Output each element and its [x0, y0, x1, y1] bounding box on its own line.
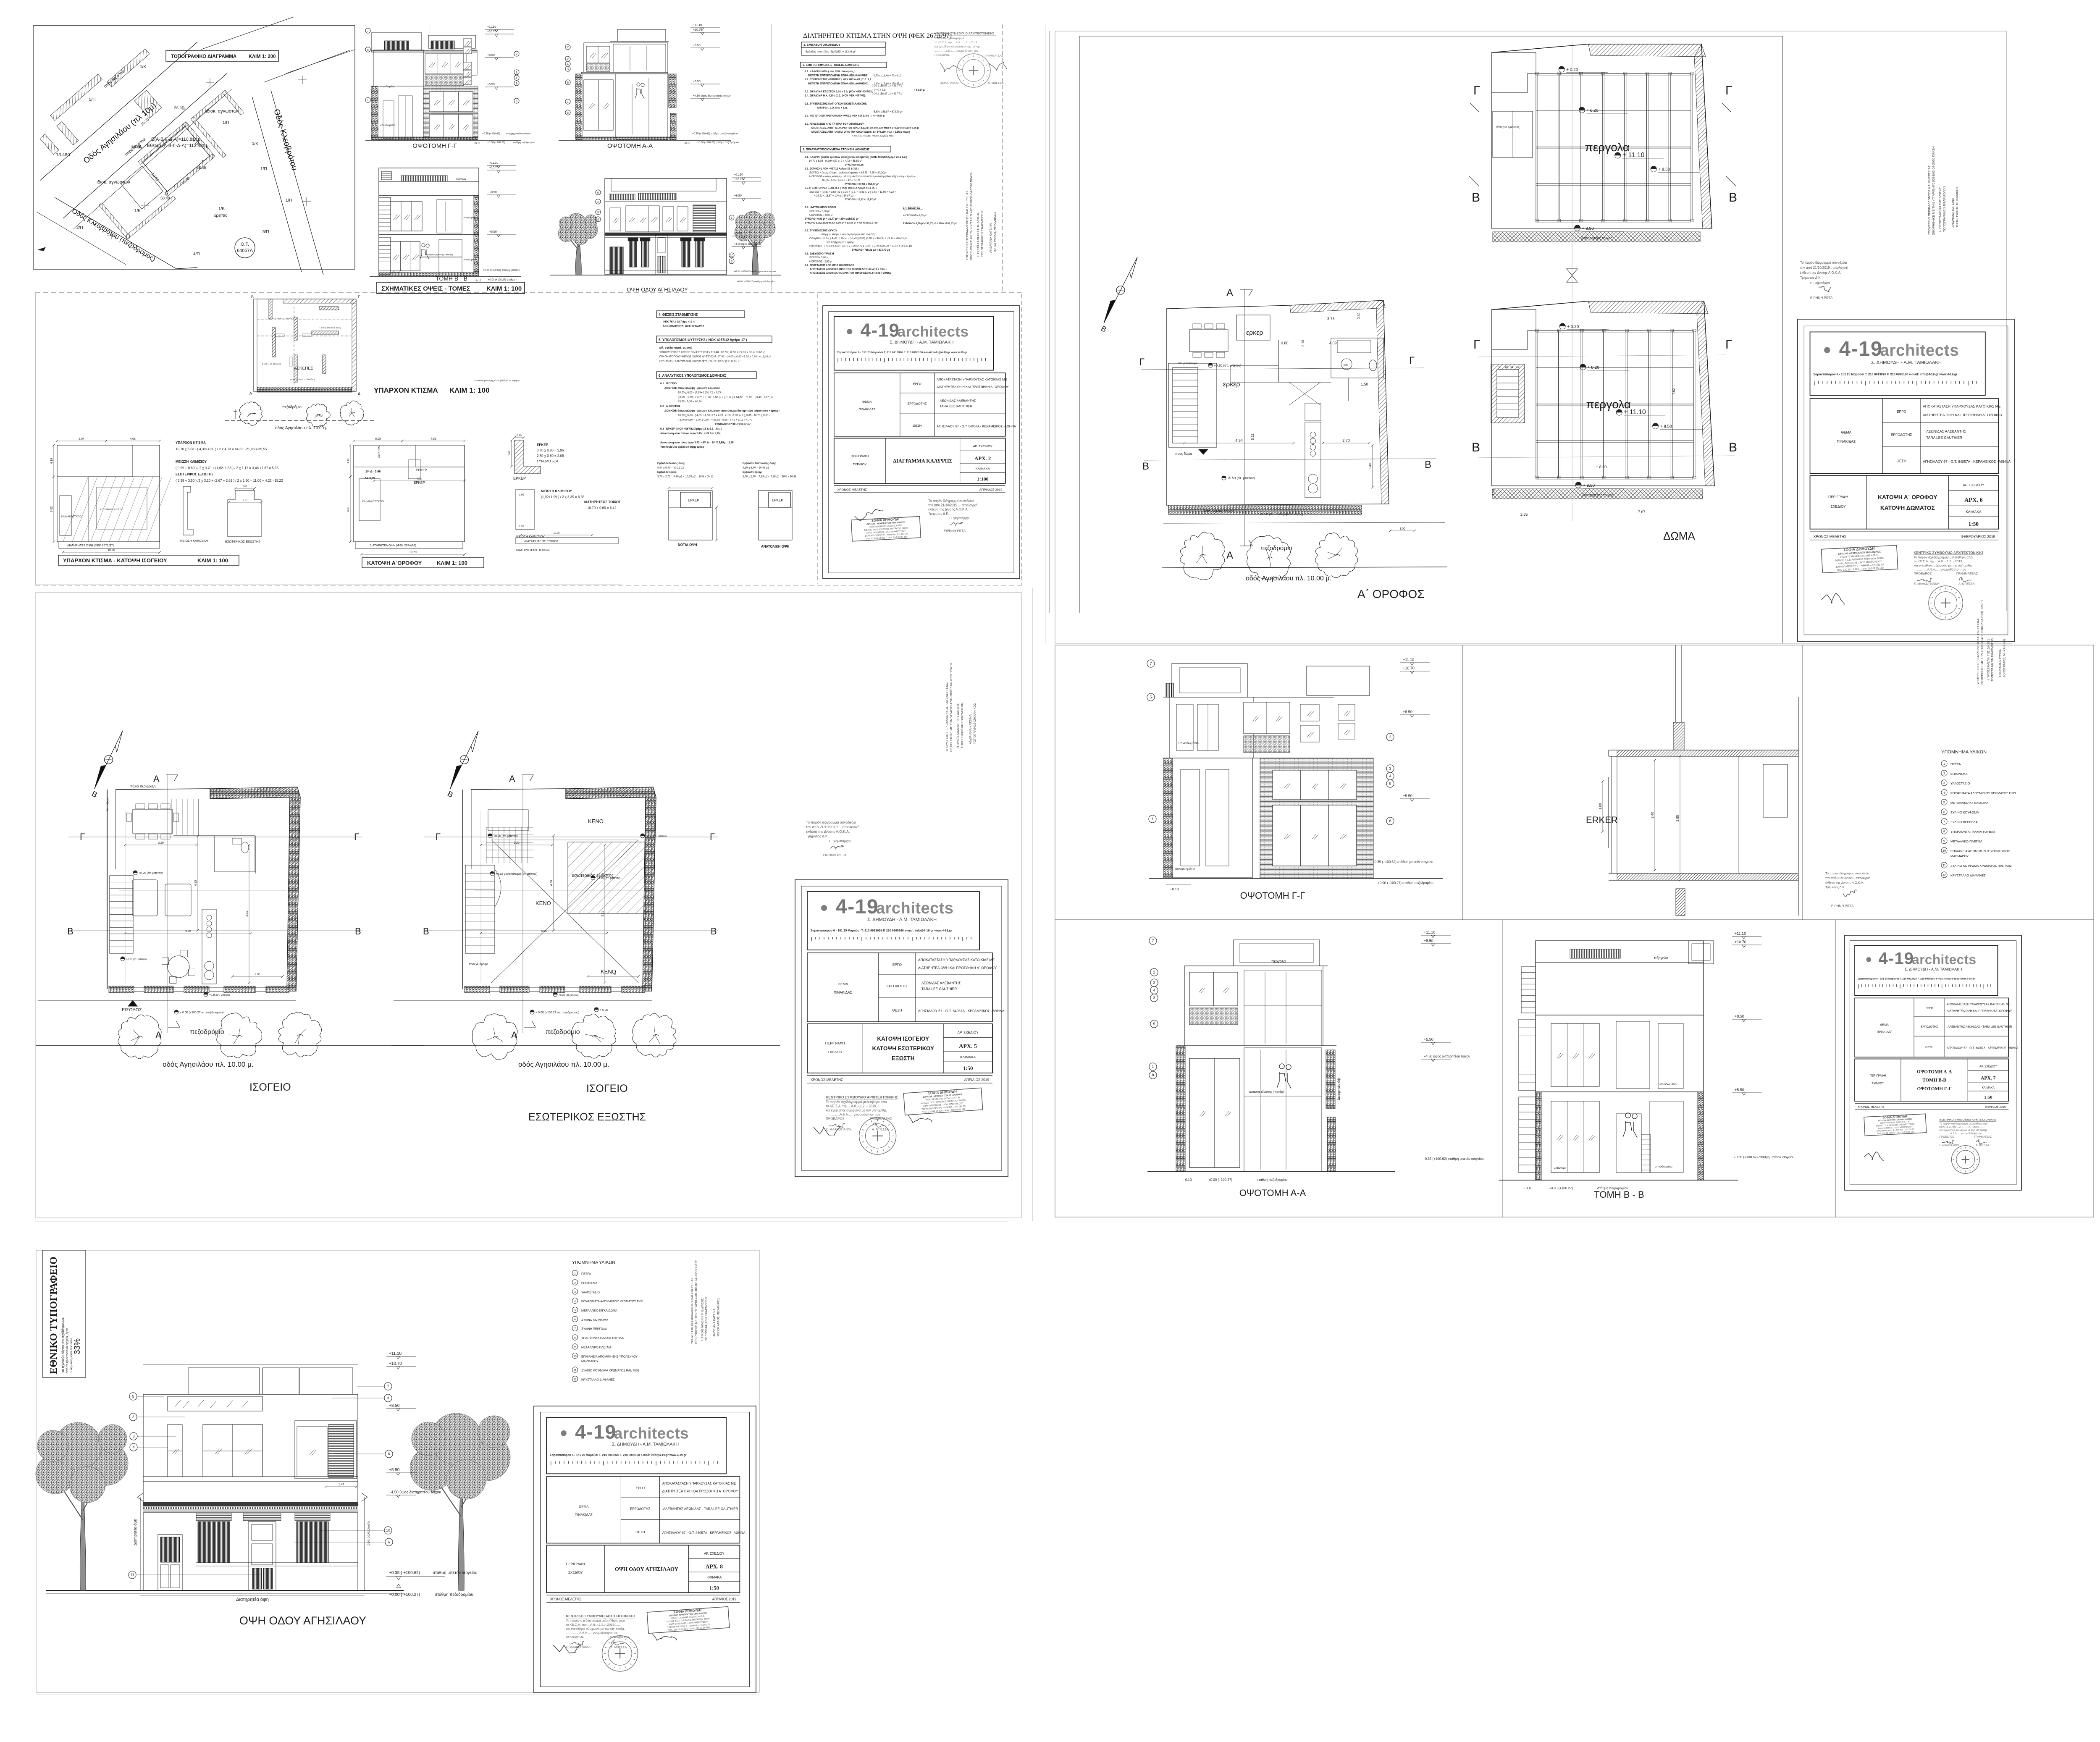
svg-text:ΠΙΝΑΚΙΔΑΣ: ΠΙΝΑΚΙΔΑΣ: [1837, 439, 1856, 443]
svg-text:+ 0.33 (+100.60 στ. δαπέδου): + 0.33 (+100.60 στ. δαπέδου): [269, 317, 294, 320]
svg-text:ΔΙΑΤΗΡΗΤΕΟΣ ΤΟΙΧΟΣ: ΔΙΑΤΗΡΗΤΕΟΣ ΤΟΙΧΟΣ: [524, 539, 559, 543]
svg-text:σμίκρυνση κατά ποσοστό: σμίκρυνση κατά ποσοστό: [69, 1338, 73, 1373]
svg-text:διατηρητεος τοιχος: διατηρητεος τοιχος: [1203, 509, 1234, 513]
svg-text:7.62: 7.62: [1672, 388, 1676, 395]
svg-text:ΠΕΡΙΓΡΑΦΗ: ΠΕΡΙΓΡΑΦΗ: [566, 1562, 585, 1566]
svg-text:ΥΑΛΟΣΤΑΣΙΟ: ΥΑΛΟΣΤΑΣΙΟ: [1950, 782, 1970, 785]
svg-text:33%: 33%: [73, 1338, 82, 1354]
svg-text:ΞΥΛΙΝΟ ΚΟΥΦΩΜΑ ΧΡΩΜΑΤΟΣ RAL 7: ΞΥΛΙΝΟ ΚΟΥΦΩΜΑ ΧΡΩΜΑΤΟΣ RAL 7002: [1950, 864, 2012, 868]
svg-text:ΓΡΑΜΜΑΤΕΑΣ: ΓΡΑΜΜΑΤΕΑΣ: [1956, 572, 1978, 575]
svg-text:έκθεση της Δ/νσης Α.Ο.Κ.Α.: έκθεση της Δ/νσης Α.Ο.Κ.Α.: [1800, 271, 1841, 275]
svg-text:Ε. ΜΛΑΚΟΓΙΑΝΝΗ: Ε. ΜΛΑΚΟΓΙΑΝΝΗ: [1914, 582, 1939, 585]
svg-text:= 0,40 x Σ.Δ.: = 0,40 x Σ.Δ.: [872, 89, 887, 92]
svg-text:υπνοδωμάτιο: υπνοδωμάτιο: [1175, 867, 1195, 871]
svg-text:εσωτερικός εξώστης ( πατάρι): εσωτερικός εξώστης ( πατάρι): [425, 253, 453, 256]
svg-text:νεο περίγραμμα + έρκερ: νεο περίγραμμα + έρκερ: [827, 241, 854, 244]
svg-text:85,55 - 6,55 - 6,42 + 5,12 =: 85,55 - 6,55 - 6,42 + 5,12 = 77,70: [822, 179, 860, 182]
svg-text:ιδιοκ. αγνώστων: ιδιοκ. αγνώστων: [206, 109, 239, 114]
svg-text:ΕΞΩΣΤΗ: ΕΞΩΣΤΗ: [892, 1055, 915, 1062]
svg-text:ΑΠΟΣΤΑΣΕΙΣ ΑΠΟ ΠΛΑΓΙΑ ΟΡΙΑ ΤΟΥ: ΑΠΟΣΤΑΣΕΙΣ ΑΠΟ ΠΛΑΓΙΑ ΟΡΙΑ ΤΟΥ ΟΙΚΟΠΕΔΟΥ…: [810, 272, 891, 275]
svg-text:ΠΙΝΑΚΙΔΑΣ: ΠΙΝΑΚΙΔΑΣ: [1877, 1031, 1892, 1034]
svg-text:+0.00 ( +100.27): +0.00 ( +100.27): [389, 1592, 420, 1597]
svg-text:ΔΙΑΤΗΡΗΤΕΟ ΚΤΙΣΜΑ ΣΤΗΝ ΟΨΗ (ΦΕ: ΔΙΑΤΗΡΗΤΕΟ ΚΤΙΣΜΑ ΣΤΗΝ ΟΨΗ (ΦΕΚ 267Δ/97): [803, 32, 952, 39]
svg-text:+10.70: +10.70: [489, 166, 499, 169]
svg-text:ΙΣΟΓΕΙΟ= 5,00 μ: ΙΣΟΓΕΙΟ= 5,00 μ: [809, 257, 828, 259]
svg-text:2: 2: [516, 53, 517, 56]
svg-text:+0.00 (+100.27): +0.00 (+100.27): [487, 142, 505, 144]
svg-text:ΞΥΛΙΝΗ ΠΕΡΓΟΛΑ: ΞΥΛΙΝΗ ΠΕΡΓΟΛΑ: [581, 1327, 607, 1331]
svg-text:ΜΑΡΜΑΡΟΥ: ΜΑΡΜΑΡΟΥ: [581, 1360, 598, 1363]
svg-text:10.70: 10.70: [108, 549, 115, 552]
svg-text:Α ΟΡΟΦΟΣ = όπως κάλυψη -: Α ΟΡΟΦΟΣ = όπως κάλυψη - μείωση κλιμ/σιο…: [809, 175, 916, 178]
svg-text:+ 0.20: + 0.20: [1567, 325, 1579, 329]
svg-text:ΔΙΑΤΗΡΗΤΕΑ ΟΨΗ ΚΑΙ ΠΡΟΣΘΗΚΗ Α΄: ΔΙΑΤΗΡΗΤΕΑ ΟΨΗ ΚΑΙ ΠΡΟΣΘΗΚΗ Α΄ ΟΡΟΦΟΥ: [918, 966, 997, 970]
svg-text:Εμβαδόν οικοπέδου: Ε(ΑΓΔΕΑ)= 1: Εμβαδόν οικοπέδου: Ε(ΑΓΔΕΑ)= 113,48 μ²: [806, 50, 856, 53]
svg-text:Α. ΜΠΕΣΣΑ: Α. ΜΠΕΣΣΑ: [611, 1645, 627, 1649]
svg-text:ΚΑΤΟΨΗ Α΄ ΟΡΟΦΟΥ: ΚΑΤΟΨΗ Α΄ ΟΡΟΦΟΥ: [1878, 494, 1937, 501]
svg-text:2: 2: [132, 1415, 134, 1419]
svg-text:4,39 χ 8,40 = 36,88 μ2: 4,39 χ 8,40 = 36,88 μ2: [743, 467, 769, 470]
svg-text:ΕΡΓΟΔΟΤΗΣ: ΕΡΓΟΔΟΤΗΣ: [630, 1507, 650, 1511]
svg-text:5: 5: [367, 49, 369, 52]
svg-text:+5.50: +5.50: [389, 1468, 400, 1472]
svg-text:1.50: 1.50: [1361, 382, 1368, 386]
svg-text:3.6. ΕΛΕΥΘΕΡΟ ΥΨΟΣ Η: 3.6. ΕΛΕΥΘΕΡΟ ΥΨΟΣ Η: [805, 253, 834, 255]
svg-text:υπάρχων κτισμα + νεο περί: υπάρχων κτισμα + νεο περίγραμμα απο Η=4,…: [821, 233, 876, 236]
svg-text:( 3,70 χ 0,80 + 2,70 χ 0,80 ): ( 3,70 χ 0,80 + 2,70 χ 0,80 ) = 85,55 - …: [678, 418, 752, 421]
svg-text:3.2. ΔΟΜΗΣΗ ( ΝΟΚ 4067/12: 3.2. ΔΟΜΗΣΗ ( ΝΟΚ 4067/12 Άρθρο 23 & 3.β…: [805, 168, 858, 171]
svg-text:+ 0.20: + 0.20: [1566, 68, 1578, 72]
svg-text:υπνοδωμάτιο: υπνοδωμάτιο: [1655, 1165, 1672, 1168]
svg-text:το ΚΕ.Σ.Α. την ....Α.Χ..-.1.: το ΚΕ.Σ.Α. την ....Α.Χ..-.1.2..-.201.9..…: [934, 41, 982, 44]
svg-text:ΙΣΟΓΕΙΟ: ΙΣΟΓΕΙΟ: [249, 1081, 291, 1093]
svg-text:TARA LEE GAUTHIER: TARA LEE GAUTHIER: [921, 987, 957, 991]
svg-text:ΔΙΑΓΡΑΜΜΑ ΚΑΛΥΨΗΣ: ΔΙΑΓΡΑΜΜΑ ΚΑΛΥΨΗΣ: [893, 458, 952, 464]
svg-text:ή δ= 2,50 +0,05Η max = 2,925: ή δ= 2,50 +0,05Η max = 2,925 μ max: [852, 135, 893, 138]
svg-text:2/Π: 2/Π: [76, 226, 83, 230]
svg-text:Α. ΜΠΕΣΣΑ: Α. ΜΠΕΣΣΑ: [988, 82, 1004, 85]
svg-text:( 0,99 + 0.89 ) x 3.70 + (1,62: ( 0,99 + 0.89 ) x 3.70 + (1,62+1,58 ) / …: [678, 396, 773, 399]
svg-text:ΑΛΕΒΑΝΤΗΣ ΛΕΩΝΙΔΑΣ - TARA LE: ΑΛΕΒΑΝΤΗΣ ΛΕΩΝΙΔΑΣ - TARA LEE GAUTHIER: [1948, 1026, 2012, 1028]
svg-text:7: 7: [367, 30, 369, 33]
svg-text:ΕΡΓΟ: ΕΡΓΟ: [636, 1486, 645, 1490]
svg-text:Απόσταση από πλάγια όρια 2,45: Απόσταση από πλάγια όρια 2,45μ >1/4 δ = …: [660, 432, 721, 435]
svg-text:Απόσταση από πίσω όρια 3,43: Απόσταση από πίσω όρια 3,43 > 3/4 Δ = 3/…: [660, 441, 734, 444]
svg-text:ΑΓΗΣΙΛΑΟΥ 67 - Ο.Τ. 64057Α -: ΑΓΗΣΙΛΑΟΥ 67 - Ο.Τ. 64057Α - ΚΕΡΑΜΕΙΚΟΣ …: [937, 425, 1016, 428]
svg-text:το ΚΕ.Σ.Α. την ...Α.8..-.1.2..: το ΚΕ.Σ.Α. την ...Α.8..-.1.2..-.2019....…: [566, 1623, 620, 1627]
svg-text:7: 7: [1943, 821, 1945, 824]
svg-text:υπνοδωμάτιο: υπνοδωμάτιο: [380, 124, 395, 127]
svg-text:+4.50 ύψος διατηρητέου τοίχου: +4.50 ύψος διατηρητέου τοίχου: [389, 1490, 441, 1494]
svg-text:+0.20 (στ. μπετον): +0.20 (στ. μπετον): [1214, 364, 1242, 367]
svg-text:ΙΣΟΓΕΙΟ: ΙΣΟΓΕΙΟ: [586, 1083, 628, 1094]
svg-text:υπνοδωμάτιο: υπνοδωμάτιο: [1179, 741, 1199, 745]
svg-text:Γ: Γ: [354, 832, 359, 842]
svg-text:Β: Β: [251, 295, 254, 299]
svg-text:Εθεωρ.(Α-Β-Γ-Δ-Α)=113.48τ.μ.: Εθεωρ.(Α-Β-Γ-Δ-Α)=113.48τ.μ.: [147, 143, 210, 148]
svg-text:- 0.10: - 0.10: [1183, 1178, 1192, 1182]
svg-text:ΦΕΚ 76Α / 98 Άθρο 4 & 4: ΦΕΚ 76Α / 98 Άθρο 4 & 4: [663, 320, 695, 323]
svg-text:+0.35 (+100.62) στάθμη μπετον: +0.35 (+100.62) στάθμη μπετον ισογείου: [1734, 1155, 1794, 1159]
svg-text:+0.35 (+100.62) στάθμη μπετόν: +0.35 (+100.62) στάθμη μπετόν ι: [483, 269, 520, 272]
svg-text:1. ΕΜΒΑΔΟΝ ΟΙΚΟΠΕΔΟΥ: 1. ΕΜΒΑΔΟΝ ΟΙΚΟΠΕΔΟΥ: [803, 44, 840, 47]
svg-text:2.7. ΑΠΟΣΤΑΣΕΙΣ ΑΠΟ ΤΑ ΟΡΙΑ Τ: 2.7. ΑΠΟΣΤΑΣΕΙΣ ΑΠΟ ΤΑ ΟΡΙΑ ΤΟΥ ΟΙΚΟΠΕΔΟ…: [805, 123, 864, 126]
svg-text:ΧΡΟΝΟΣ ΜΕΛΕΤΗΣ: ΧΡΟΝΟΣ ΜΕΛΕΤΗΣ: [1814, 534, 1846, 538]
svg-text:ΑΠΡΙΛΙΟΣ 2019: ΑΠΡΙΛΙΟΣ 2019: [1985, 1106, 2006, 1109]
svg-text:ΑΡ. ΣΧΕΔΙΟΥ: ΑΡ. ΣΧΕΔΙΟΥ: [704, 1552, 724, 1556]
svg-text:5: 5: [574, 1309, 576, 1312]
svg-text:ΓΡΑΜΜΑΤΕΑΣ: ΓΡΑΜΜΑΤΕΑΣ: [870, 1117, 892, 1121]
svg-text:ΘΕΜΑ: ΘΕΜΑ: [838, 982, 848, 986]
svg-text:2: 2: [1389, 735, 1391, 739]
svg-text:Γ: Γ: [1139, 357, 1144, 368]
svg-text:5: 5: [1150, 695, 1152, 699]
svg-text:10: 10: [1504, 366, 1508, 369]
svg-text:3: 3: [1153, 996, 1155, 1000]
svg-text:ΞΥΛΙΝΗ ΠΕΡΓΟΛΑ: ΞΥΛΙΝΗ ΠΕΡΓΟΛΑ: [1950, 820, 1978, 824]
svg-text:ΜΕΤΑΛΛΙΚΟ ΠΛΕΓΜΑ: ΜΕΤΑΛΛΙΚΟ ΠΛΕΓΜΑ: [1950, 840, 1982, 843]
svg-text:3,70 x 2,70 = 9,99 μ2 < 10,03: 3,70 x 2,70 = 9,99 μ2 < 10,03 μ2 = 20% x…: [657, 475, 714, 478]
svg-text:11: 11: [1942, 864, 1945, 867]
svg-text:προς δώμα: προς δώμα: [1175, 452, 1192, 456]
svg-text:1/Π: 1/Π: [286, 198, 292, 203]
svg-text:Υπολογισμός εμβαδού όψης έρκερ: Υπολογισμός εμβαδού όψης έρκερ: [660, 445, 704, 449]
svg-text:ΜΕΙΩΣΗ ΚΛΙΜ/ΣΙΟΥ: ΜΕΙΩΣΗ ΚΛΙΜ/ΣΙΟΥ: [541, 489, 572, 493]
svg-text:και εγκρίθηκε σύμφωνα με την υ: και εγκρίθηκε σύμφωνα με την υπ' αριθμ.: [1914, 564, 1972, 567]
svg-text:...............Α.5.Λ..... γνωμ: ...............Α.5.Λ..... γνωμοδότηση το…: [566, 1631, 618, 1634]
svg-text:Β: Β: [1472, 441, 1480, 454]
svg-text:ΜΕΓΙΣΤΗ ΕΠΙΤΡΕΠΟΜΕΝΗ ΕΠΙΦΑΝΕΙΑ: ΜΕΓΙΣΤΗ ΕΠΙΤΡΕΠΟΜΕΝΗ ΕΠΙΦΑΝΕΙΑ ΔΟΜΗΣΗΣ:: [808, 83, 869, 85]
svg-text:Εμβαδόν Ανατολικής όψης: Εμβαδόν Ανατολικής όψης: [743, 462, 777, 465]
svg-text:Το παρόν σχεδιάγραμμα μελετήθη: Το παρόν σχεδιάγραμμα μελετήθηκε από: [1914, 555, 1972, 559]
svg-text:Δ: Δ: [165, 190, 168, 196]
svg-text:ΑΠΟΣΤΑΣΕΙΣ ΑΠΟ ΠΛΑΓΙΑ ΟΡΙΑ ΤΟΥ: ΑΠΟΣΤΑΣΕΙΣ ΑΠΟ ΠΛΑΓΙΑ ΟΡΙΑ ΤΟΥ ΟΙΚΟΠΕΔΟΥ…: [811, 131, 910, 134]
svg-text:Σαρανταπόρου 6 - 151 25 Μαρούσ: Σαρανταπόρου 6 - 151 25 Μαρούσι Τ. 210 6…: [1858, 978, 1975, 981]
svg-text:ΤΟΠΟΓΡΑΦΟΣ ΜΗΧΑΝΙΚΟΣ: ΤΟΠΟΓΡΑΦΟΣ ΜΗΧΑΝΙΚΟΣ: [1955, 186, 1959, 228]
svg-text:58.45: 58.45: [197, 165, 206, 170]
svg-text:ΚΕΝΤΡΙΚΟ ΣΥΜΒΟΥΛΙΟ ΑΡΧΙΤΕΚΤΟ: ΚΕΝΤΡΙΚΟ ΣΥΜΒΟΥΛΙΟ ΑΡΧΙΤΕΚΤΟΝΙΚΗΣ: [826, 1095, 898, 1099]
svg-text:Β: Β: [181, 105, 185, 111]
svg-text:ΟΨΟΤΟΜΗ Γ-Γ: ΟΨΟΤΟΜΗ Γ-Γ: [412, 142, 457, 150]
svg-text:Σ. ΔΗΜΟΥΔΗ - Α.Μ. ΤΑΜΙΩΛΑΚΗ: Σ. ΔΗΜΟΥΔΗ - Α.Μ. ΤΑΜΙΩΛΑΚΗ: [1905, 967, 1962, 971]
svg-text:ΕΡΓΟ: ΕΡΓΟ: [892, 963, 902, 967]
svg-text:ΚΡΥΣΤΑΛΛΟ ΔΙΑΦΑΝΕΣ: ΚΡΥΣΤΑΛΛΟ ΔΙΑΦΑΝΕΣ: [1950, 874, 1986, 877]
svg-text:ΠΙΝΑΚΙΔΑΣ: ΠΙΝΑΚΙΔΑΣ: [858, 407, 876, 411]
svg-text:6.2 . Ά ΟΡΟΦΟΣ: 6.2 . Ά ΟΡΟΦΟΣ: [660, 405, 680, 408]
svg-text:2: 2: [567, 58, 569, 61]
svg-text:Σ. ΔΗΜΟΥΔΗ - Α.Μ. ΤΑΜΙΩΛΑΚΗ: Σ. ΔΗΜΟΥΔΗ - Α.Μ. ΤΑΜΙΩΛΑΚΗ: [612, 1442, 679, 1447]
svg-text:6: 6: [574, 1318, 576, 1321]
svg-text:4-19: 4-19: [861, 320, 900, 341]
svg-text:Α΄ ΟΡΟΦΟΣ: Α΄ ΟΡΟΦΟΣ: [1357, 588, 1424, 601]
svg-text:...............1.5.1..... γνωμ: ...............1.5.1..... γνωμοδότηση το…: [934, 49, 978, 52]
svg-text:10: 10: [386, 1528, 390, 1532]
svg-text:6.1 . ΙΣΟΓΕΙΟ: 6.1 . ΙΣΟΓΕΙΟ: [660, 382, 677, 385]
svg-text:Α. ΜΠΕΣΣΑ: Α. ΜΠΕΣΣΑ: [1976, 1144, 1989, 1147]
svg-text:0.52: 0.52: [1357, 312, 1361, 319]
svg-text:ΕΡΓΟΔΟΤΗΣ: ΕΡΓΟΔΟΤΗΣ: [1921, 1026, 1938, 1028]
svg-text:Β: Β: [67, 926, 73, 937]
svg-text:ΚΛΙΜΑΚΑ: ΚΛΙΜΑΚΑ: [1982, 1086, 1995, 1089]
svg-text:2.70: 2.70: [1342, 438, 1350, 443]
svg-text:4: 4: [132, 1445, 134, 1449]
svg-text:ΕΡΚΕΡ: ΕΡΚΕΡ: [688, 498, 699, 502]
svg-text:Η ΠΡΟΪΣΤΑΜΕΝΗ ΤΗΣ Δ/ΝΣΗΣ: Η ΠΡΟΪΣΤΑΜΕΝΗ ΤΗΣ Δ/ΝΣΗΣ: [1938, 187, 1942, 232]
svg-text:ΑΠΟΚΑΤΑΣΤΑΣΗ ΥΠΑΡΧΟΥΣΑΣ ΚΑΤΟΙ: ΑΠΟΚΑΤΑΣΤΑΣΗ ΥΠΑΡΧΟΥΣΑΣ ΚΑΤΟΙΚΙΑΣ ΜΕ: [937, 378, 1007, 381]
svg-text:ΤΟΠΟΓΡΑΦΙΚΩΝ ΕΦΑΡΜΟΓΩΝ: ΤΟΠΟΓΡΑΦΙΚΩΝ ΕΦΑΡΜΟΓΩΝ: [960, 703, 964, 748]
svg-text:7: 7: [1152, 939, 1154, 943]
svg-text:ΘΕΩΡΗΘΗΚΕ ΜΕ ΤΗΝ ΥΠ'ΑΡΙΘ.4701/: ΘΕΩΡΗΘΗΚΕ ΜΕ ΤΗΝ ΥΠ'ΑΡΙΘ.4701/388/02-04-…: [969, 171, 973, 260]
svg-text:ΣΧΕΔΙΟΥ: ΣΧΕΔΙΟΥ: [827, 1050, 843, 1054]
svg-text:Σ. ΔΗΜΟΥΔΗ - Α.Μ. ΤΑΜΙΩΛΑΚΗ: Σ. ΔΗΜΟΥΔΗ - Α.Μ. ΤΑΜΙΩΛΑΚΗ: [867, 917, 937, 922]
svg-text:9: 9: [516, 82, 517, 85]
svg-text:+ 0.43 (+100.73 στ. δαπέδου): + 0.43 (+100.73 στ. δαπέδου): [290, 378, 315, 380]
svg-text:+11.10: +11.10: [734, 173, 743, 176]
svg-text:4: 4: [567, 63, 569, 66]
svg-text:Η ΠΡΟΪΣΤΑΜΕΝΗ ΤΗΣ Δ/ΝΣΗΣ: Η ΠΡΟΪΣΤΑΜΕΝΗ ΤΗΣ Δ/ΝΣΗΣ: [976, 212, 980, 257]
svg-text:2.61: 2.61: [242, 485, 247, 488]
svg-text:Η Τμηματάρχης: Η Τμηματάρχης: [950, 517, 970, 520]
svg-text:ΘΕΜΑ: ΘΕΜΑ: [579, 1505, 589, 1509]
svg-text:ΚΛΙΜΑΚΟΣΤΑΣΙΟ: ΚΛΙΜΑΚΟΣΤΑΣΙΟ: [362, 500, 384, 503]
svg-text:ανοικτός εξώστης ( πατάρι): ανοικτός εξώστης ( πατάρι): [1249, 1090, 1284, 1094]
svg-text:1:50: 1:50: [709, 1585, 719, 1591]
svg-text:+8.50: +8.50: [389, 1404, 400, 1408]
svg-text:7: 7: [567, 46, 569, 49]
svg-text:ΑΠΟΣΤΑΣΕΙΣ ΑΠΟ ΠΙΣΩ ΟΡΙΟ ΤΟΥ Ο: ΑΠΟΣΤΑΣΕΙΣ ΑΠΟ ΠΙΣΩ ΟΡΙΟ ΤΟΥ ΟΙΚΟΠΕΔΟΥ: …: [810, 268, 887, 271]
svg-text:ΔΙΑΤΗΡΗΤΕΑ ΟΨΗ ΚΑΙ ΠΡΟΣΘΗΚΗ Α΄: ΔΙΑΤΗΡΗΤΕΑ ΟΨΗ ΚΑΙ ΠΡΟΣΘΗΚΗ Α΄ ΟΡΟΦΟΥ: [662, 1489, 738, 1493]
svg-text:ΠΡΟΕΔΡΟΣ: ΠΡΟΕΔΡΟΣ: [826, 1117, 845, 1121]
svg-text:5,97 χ 8,40 = 50,15 μ2: 5,97 χ 8,40 = 50,15 μ2: [657, 467, 684, 470]
svg-text:ΕΙΡΗΝΗ ΡΙΓΓΑ: ΕΙΡΗΝΗ ΡΙΓΓΑ: [1831, 904, 1854, 908]
svg-text:3: 3: [132, 1434, 134, 1438]
svg-text:ΣΧΕΔΙΟΥ: ΣΧΕΔΙΟΥ: [853, 462, 867, 466]
svg-text:+10.70: +10.70: [693, 29, 702, 31]
svg-text:6: 6: [1943, 811, 1945, 814]
svg-text:ΑΡΧ. 8: ΑΡΧ. 8: [706, 1564, 723, 1570]
svg-text:+4.50 ύψος διατηρητέου τοίχου: +4.50 ύψος διατηρητέου τοίχου: [693, 94, 731, 97]
svg-text:9: 9: [1499, 366, 1500, 369]
svg-text:ΠΡΑΓΜΑΤΟΠΟΙΟΥΜΕΝΟΣ ΧΩΡΟΣ ΦΥΤΕΥ: ΠΡΑΓΜΑΤΟΠΟΙΟΥΜΕΝΟΣ ΧΩΡΟΣ ΦΥΤΕΥΣΗΣ: 27,93…: [659, 355, 771, 358]
svg-text:ΙΣΟΓΕΙΟ = όπως κάλυψη: ΙΣΟΓΕΙΟ = όπως κάλυψη - μείωση κλιμ/σιου…: [809, 171, 887, 174]
svg-text:ΑΠΡΙΛΙΟΣ 2019: ΑΠΡΙΛΙΟΣ 2019: [712, 1598, 737, 1601]
svg-text:απο μεσοπάτωμα: απο μεσοπάτωμα: [1178, 362, 1198, 365]
svg-text:4-19: 4-19: [1839, 338, 1883, 360]
svg-text:Σαρανταπόρου 6 - 151 25 Μαρούσ: Σαρανταπόρου 6 - 151 25 Μαρούσι Τ. 210 6…: [811, 929, 952, 932]
svg-text:3.40: 3.40: [1368, 463, 1372, 470]
svg-text:3: 3: [1943, 782, 1945, 785]
svg-text:10.70: 10.70: [553, 532, 560, 535]
svg-text:ΥΠΑΡΧΟΝ ΚΤΙΣΜΑ - ΚΑΤΟΨΗ ΙΣΟΓΕΙ: ΥΠΑΡΧΟΝ ΚΤΙΣΜΑ - ΚΑΤΟΨΗ ΙΣΟΓΕΙΟΥ: [63, 557, 167, 564]
svg-text:ΣΥΝΟΛΟ ΕΞΩΣΤΩΝ-Η.Χ.= 0,00 μ² <: ΣΥΝΟΛΟ ΕΞΩΣΤΩΝ-Η.Χ.= 0,00 μ² < 63,44 μ² …: [805, 221, 878, 224]
svg-text:1: 1: [367, 99, 369, 102]
svg-text:ΑΡΧ. 2: ΑΡΧ. 2: [974, 456, 991, 462]
svg-text:οδός Αγησιλάου πλ. 10.00 μ.: οδός Αγησιλάου πλ. 10.00 μ.: [518, 1060, 609, 1068]
svg-text:10,70 χ 6,03 - (4,39+4,50 ) /: 10,70 χ 6,03 - (4,39+4,50 ) / 2 x 4,73 -: [678, 391, 722, 394]
svg-text:TARA LEE GAUTHIER: TARA LEE GAUTHIER: [1926, 435, 1962, 440]
svg-text:ΚΟΥΦΩΜΑΤΑ ΑΛΟΥΜΙΝΙΟΥ ΧΡΩΜΑΤΟΣ: ΚΟΥΦΩΜΑΤΑ ΑΛΟΥΜΙΝΙΟΥ ΧΡΩΜΑΤΟΣ ΓΚΡΙ: [1950, 791, 2016, 795]
svg-text:11: 11: [130, 1573, 134, 1577]
svg-text:ΔΙΑΤΗΡΗΤΕΑ ΟΨΗ ΚΑΙ ΠΡΟΣΘΗΚΗ Α΄: ΔΙΑΤΗΡΗΤΕΑ ΟΨΗ ΚΑΙ ΠΡΟΣΘΗΚΗ Α΄ ΟΡΟΦΟΥ: [937, 385, 1009, 388]
svg-text:3.3. ΗΜΙΥΠΑΙΘΡΙΟΙ ΧΩΡΟΙ: 3.3. ΗΜΙΥΠΑΙΘΡΙΟΙ ΧΩΡΟΙ: [805, 207, 836, 209]
svg-text:11: 11: [1510, 366, 1513, 369]
svg-text:στάθμη πεζοδρομίου: στάθμη πεζοδρομίου: [1257, 1178, 1288, 1182]
svg-text:Η ΠΡΟΪΣΤΑΜΕΝΗ ΤΗΣ Δ/ΝΣΗΣ: Η ΠΡΟΪΣΤΑΜΕΝΗ ΤΗΣ Δ/ΝΣΗΣ: [701, 1298, 704, 1341]
svg-text:ΑΠΡΙΛΙΟΣ 2019: ΑΠΡΙΛΙΟΣ 2019: [979, 488, 1003, 491]
svg-text:το ΚΕ.Σ.Α. την ...Α.8..-.1.2..: το ΚΕ.Σ.Α. την ...Α.8..-.1.2..-.2019....…: [1939, 1125, 1984, 1128]
svg-text:ΥΠΟΧΡΕΩΤΙΚΟΣ ΧΩΡΟΣ ΓΙΑ ΦΥΤΕΥΣΗ: ΥΠΟΧΡΕΩΤΙΚΟΣ ΧΩΡΟΣ ΓΙΑ ΦΥΤΕΥΣΗ: ( 113,48…: [659, 351, 765, 354]
svg-text:+ 8.50: + 8.50: [1596, 465, 1606, 469]
svg-text:ΚΑΤΟΨΗ ΔΩΜΑΤΟΣ: ΚΑΤΟΨΗ ΔΩΜΑΤΟΣ: [1880, 505, 1935, 511]
svg-text:+0.35 (+100.62) στάθμη μπετόν: +0.35 (+100.62) στάθμη μπετόν ισογείου: [1423, 1157, 1483, 1161]
svg-text:3: 3: [567, 68, 569, 71]
svg-text:ΦΕΒΡΟΥΑΡΙΟΣ 2019: ΦΕΒΡΟΥΑΡΙΟΣ 2019: [1961, 534, 1995, 538]
svg-text:7: 7: [574, 1327, 576, 1330]
svg-text:υπνοδωμάτιο: υπνοδωμάτιο: [380, 85, 395, 88]
svg-text:Β: Β: [355, 926, 361, 937]
svg-text:ΕΣΩΤΕΡΙΚΟΣ ΕΞΩΣΤΗΣ: ΕΣΩΤΕΡΙΚΟΣ ΕΞΩΣΤΗΣ: [225, 540, 260, 543]
svg-text:8: 8: [567, 112, 569, 115]
svg-text:ΔΟΜΗΣΗ: όπως κάλυψη - μεκ: ΔΟΜΗΣΗ: όπως κάλυψη - μεκωση κλιμ/σιου- …: [664, 409, 781, 412]
svg-text:2: 2: [574, 1281, 576, 1284]
svg-text:4.16: 4.16: [50, 458, 53, 464]
svg-text:+ 0.00 (+100.27 στ. πεζοδρομίο: + 0.00 (+100.27 στ. πεζοδρομίου): [180, 1011, 223, 1014]
svg-text:ΤΟΠΟΓΡΑΦΙΚΩΝ ΕΦΑΡΜΟΓΩΝ: ΤΟΠΟΓΡΑΦΙΚΩΝ ΕΦΑΡΜΟΓΩΝ: [1942, 186, 1946, 232]
svg-text:ΚΛΙΜ 1: 100: ΚΛΙΜ 1: 100: [486, 285, 522, 292]
svg-text:6: 6: [388, 1452, 390, 1456]
svg-text:1: 1: [574, 1272, 576, 1275]
svg-text:ΚΑΤΟΨΗ Α΄ΟΡΟΦΟΥ: ΚΑΤΟΨΗ Α΄ΟΡΟΦΟΥ: [367, 560, 422, 566]
svg-text:2,60 χ 0,80 = 2,08: 2,60 χ 0,80 = 2,08: [537, 454, 564, 458]
svg-text:4: 4: [1153, 988, 1155, 992]
svg-text:+4.50 (στ. διατηρητέας όψης): +4.50 (στ. διατηρητέας όψης): [1260, 512, 1303, 516]
svg-text:Γ: Γ: [1409, 355, 1415, 366]
svg-text:3.75: 3.75: [1327, 317, 1335, 321]
svg-text:το ΚΕ.Σ.Α. την ...Α.8..-.1.2..: το ΚΕ.Σ.Α. την ...Α.8..-.1.2..-.2019....…: [826, 1104, 882, 1108]
svg-text:12: 12: [573, 1378, 577, 1381]
svg-text:2: 2: [1153, 981, 1155, 985]
svg-text:ΤΟΠΟΓΡΑΦΙΚΩΝ ΕΦΑΡΜΟΓΩΝ: ΤΟΠΟΓΡΑΦΙΚΩΝ ΕΦΑΡΜΟΓΩΝ: [705, 1297, 708, 1341]
svg-text:2.5. ΣΥΝΤΕΛΕΣΤΗΣ ΚΑΤ' ΟΓΚΟΝ Ε: 2.5. ΣΥΝΤΕΛΕΣΤΗΣ ΚΑΤ' ΟΓΚΟΝ ΕΚΜΕΤΑΛΛΕΥΣΗ…: [805, 103, 867, 105]
svg-text:Γ: Γ: [1725, 84, 1732, 97]
svg-text:+11.10: +11.10: [1424, 930, 1435, 934]
svg-text:Γ: Γ: [1473, 338, 1480, 352]
svg-text:Β: Β: [711, 926, 717, 937]
svg-text:6.3 . ΕΡΚΕΡ ( ΝΟΚ 4067/12 Άρθρ: 6.3 . ΕΡΚΕΡ ( ΝΟΚ 4067/12 Άρθρο 16 & 5.δ…: [660, 428, 722, 430]
svg-text:ΚΛΙΜ 1: 100: ΚΛΙΜ 1: 100: [197, 557, 228, 564]
svg-text:2.85: 2.85: [1676, 815, 1680, 821]
svg-text:Β: Β: [1472, 191, 1480, 205]
svg-text:Α. ΜΠΕΣΣΑ: Α. ΜΠΕΣΣΑ: [1958, 582, 1975, 585]
svg-text:ERKER: ERKER: [1586, 815, 1618, 825]
svg-text:7.67: 7.67: [1638, 510, 1646, 514]
svg-text:ΑΝΔΡΙΑΝΑ ΚΑΤΣΙΝΑ: ΑΝΔΡΙΑΝΑ ΚΑΤΣΙΝΑ: [969, 714, 972, 744]
svg-text:ΕΙΡΗΝΗ ΡΙΓΓΑ: ΕΙΡΗΝΗ ΡΙΓΓΑ: [823, 853, 847, 857]
svg-text:ΧΡΟΝΟΣ ΜΕΛΕΤΗΣ: ΧΡΟΝΟΣ ΜΕΛΕΤΗΣ: [837, 488, 867, 491]
svg-text:ΣΧΕΔΙΟΥ: ΣΧΕΔΙΟΥ: [1872, 1082, 1884, 1085]
svg-text:ΥΠΟΜΝΗΜΑ ΥΛΙΚΩΝ: ΥΠΟΜΝΗΜΑ ΥΛΙΚΩΝ: [1941, 750, 1987, 755]
svg-text:Β: Β: [1729, 441, 1737, 454]
svg-text:Το παρόν διάγραμμα συνοδεύει: Το παρόν διάγραμμα συνοδεύει: [1800, 261, 1847, 265]
svg-text:ΤΟΜΗ Β-Β: ΤΟΜΗ Β-Β: [1922, 1078, 1946, 1083]
svg-text:3: 3: [597, 211, 599, 214]
svg-text:1: 1: [1943, 763, 1945, 766]
svg-text:ΕΠΙΦΑΝΕΙΑ ΑΠΟΜΙΜΗΣΗΣ ΥΠΟΛΕΥΚΟΥ: ΕΠΙΦΑΝΕΙΑ ΑΠΟΜΙΜΗΣΗΣ ΥΠΟΛΕΥΚΟΥ: [1950, 849, 2010, 853]
svg-text:ΚΛΙΜΑΚΑ: ΚΛΙΜΑΚΑ: [960, 1055, 976, 1059]
svg-text:καθιστικα: καθιστικα: [1554, 1167, 1566, 1170]
svg-text:ΚΕΝΤΡΙΚΟ ΣΥΜΒΟΥΛΙΟ ΑΡΧΙΤΕΚΤΟ: ΚΕΝΤΡΙΚΟ ΣΥΜΒΟΥΛΙΟ ΑΡΧΙΤΕΚΤΟΝΙΚΗΣ: [934, 32, 994, 35]
svg-text:ΚΛΙΜ 1: 200: ΚΛΙΜ 1: 200: [249, 54, 276, 59]
svg-text:3: 3: [516, 71, 517, 74]
svg-text:1.58: 1.58: [1491, 489, 1495, 496]
svg-text:ΘΕΣΗ: ΘΕΣΗ: [1925, 1046, 1933, 1049]
svg-text:ΣΥΝΟΛΟ 5,04: ΣΥΝΟΛΟ 5,04: [537, 459, 559, 463]
svg-text:1/Κ: 1/Κ: [140, 65, 146, 69]
svg-text:ΔΙΑΤΗΡΗΤΕΑ ΟΨΗ ΚΑΙ ΠΡΟΣΘΗΚΗ Α΄: ΔΙΑΤΗΡΗΤΕΑ ΟΨΗ ΚΑΙ ΠΡΟΣΘΗΚΗ Α΄ ΟΡΟΦΟΥ: [1947, 1010, 2012, 1013]
svg-text:Σαρανταπόρου 6 - 151 25 Μαρούσ: Σαρανταπόρου 6 - 151 25 Μαρούσι Τ. 210 6…: [1814, 373, 1958, 376]
svg-text:ΤΟΠΟΓΡΑΦΙΚΩΝ ΕΦΑΡΜΟΓΩΝ: ΤΟΠΟΓΡΑΦΙΚΩΝ ΕΦΑΡΜΟΓΩΝ: [1991, 638, 1994, 681]
svg-text:δ= 2,925: δ= 2,925: [378, 446, 381, 458]
svg-text:Τμήματος Δ.Κ.: Τμήματος Δ.Κ.: [928, 512, 949, 516]
svg-text:+0.00 (+100.27): +0.00 (+100.27): [1549, 1186, 1573, 1190]
svg-text:ΚΛΙΜ 1: 100: ΚΛΙΜ 1: 100: [437, 560, 467, 566]
svg-text:ΥΠΟΜΝΗΜΑ ΥΛΙΚΩΝ: ΥΠΟΜΝΗΜΑ ΥΛΙΚΩΝ: [572, 1260, 615, 1265]
svg-text:ΔΙΑΤΗΡΗΤΕΟΣ ΤΟΙΧΟΣ: ΔΙΑΤΗΡΗΤΕΟΣ ΤΟΙΧΟΣ: [516, 548, 550, 552]
svg-text:ΘΕΜΑ: ΘΕΜΑ: [1880, 1024, 1889, 1027]
svg-text:ΑΛΕΒΑΝΤΗΣ ΛΕΩΝΙΔΑΣ - TARA LE: ΑΛΕΒΑΝΤΗΣ ΛΕΩΝΙΔΑΣ - TARA LEE GAUTHIER: [663, 1507, 738, 1511]
svg-text:Εμβαδόν έρκερ: Εμβαδόν έρκερ: [657, 471, 677, 474]
svg-text:ΚΕΝΟ: ΚΕΝΟ: [588, 818, 604, 824]
svg-text:9: 9: [1389, 782, 1391, 786]
svg-text:την από 21/10/2019.. απολογική: την από 21/10/2019.. απολογική: [1800, 266, 1848, 270]
svg-text:ΤΟΠΟΓΡΑΦΙΚΩΝ ΕΦΑΡΜΟΓΩΝ: ΤΟΠΟΓΡΑΦΙΚΩΝ ΕΦΑΡΜΟΓΩΝ: [980, 211, 984, 257]
svg-text:1/4 Δ= 0,96: 1/4 Δ= 0,96: [365, 470, 381, 473]
svg-text:2.1. ΚΑΛΥΨΗ= 60% ( εως 70% υπ: 2.1. ΚΑΛΥΨΗ= 60% ( εως 70% υπο ορους ): [805, 71, 855, 73]
svg-text:ΣΧΕΔΙΟΥ: ΣΧΕΔΙΟΥ: [1831, 504, 1846, 509]
svg-text:4.15: 4.15: [347, 458, 350, 463]
svg-text:ΚΕΝΤΡΙΚΟ ΣΥΜΒΟΥΛΙΟ ΑΡΧΙΤΕΚΤΟ: ΚΕΝΤΡΙΚΟ ΣΥΜΒΟΥΛΙΟ ΑΡΧΙΤΕΚΤΟΝΙΚΗΣ: [1939, 1119, 1996, 1122]
svg-text:+10.70: +10.70: [1403, 666, 1415, 670]
svg-text:Γ: Γ: [436, 832, 441, 842]
svg-text:10,70 χ 6,03 - ( 4,39 + 4,50: 10,70 χ 6,03 - ( 4,39 + 4,50 ) / 2 x 4,7…: [678, 414, 771, 417]
svg-text:ΒΙΜΛΑΤΡΟΛΑΣ: ΒΙΜΛΑΤΡΟΛΑΣ: [940, 82, 959, 85]
svg-text:Το παρόν σχεδιάγραμμα μελετήθη: Το παρόν σχεδιάγραμμα μελετήθηκε από: [1939, 1122, 1987, 1125]
svg-text:2,70 x 2,70 = 7,29 μ2 < 7,38μ2: 2,70 x 2,70 = 7,29 μ2 < 7,38μ2 = 20% x 3…: [743, 475, 797, 478]
svg-text:ΔΙΑΤΗΡΗΤΕΑ ΟΨΗ (ΦΕΚ 267Δ/97): ΔΙΑΤΗΡΗΤΕΑ ΟΨΗ (ΦΕΚ 267Δ/97): [67, 544, 114, 547]
svg-text:ΥΠΟΥΡΓΕΙΟ ΠΕΡΙΒΑΛΛΟΝΤΟΣ ΚΑΙ ΕΝ: ΥΠΟΥΡΓΕΙΟ ΠΕΡΙΒΑΛΛΟΝΤΟΣ ΚΑΙ ΕΝΕΡΓΕΙΑΣ: [690, 1278, 694, 1344]
svg-text:Η ΠΡΟΪΣΤΑΜΕΝΗ ΤΗΣ Δ/ΝΣΗΣ: Η ΠΡΟΪΣΤΑΜΕΝΗ ΤΗΣ Δ/ΝΣΗΣ: [1987, 638, 1990, 681]
svg-text:2: 2: [1943, 772, 1945, 775]
svg-text:+4.50 ύψος διατηρητέου τοίχου: +4.50 ύψος διατηρητέου τοίχου: [1424, 1055, 1470, 1058]
svg-text:ΠΙΝΑΚΙΔΑΣ: ΠΙΝΑΚΙΔΑΣ: [575, 1513, 593, 1517]
svg-text:+0.20 (στ. μπετον): +0.20 (στ. μπετον): [493, 835, 517, 838]
svg-text:ΛΕΩΝΙΔΑΣ ΑΛΕΒΑΝΤΗΣ: ΛΕΩΝΙΔΑΣ ΑΛΕΒΑΝΤΗΣ: [940, 399, 976, 403]
svg-text:+11.10: +11.10: [489, 162, 498, 165]
svg-text:την από 21/10/2019.... αιτιολο: την από 21/10/2019.... αιτιολογική: [928, 503, 977, 507]
svg-text:Το παρόν διάγραμμα συνοδεύει: Το παρόν διάγραμμα συνοδεύει: [1825, 871, 1869, 875]
svg-text:Α: Α: [249, 391, 252, 396]
svg-text:85,55 - 5,35 = 80,20: 85,55 - 5,35 = 80,20: [678, 400, 702, 403]
svg-text:+0.35 (στ. μπετον): +0.35 (στ. μπετον): [559, 994, 579, 997]
svg-text:ΤΟΠΟΓΡΑΦΟΣ ΜΗΧΑΝΙΚΟΣ: ΤΟΠΟΓΡΑΦΟΣ ΜΗΧΑΝΙΚΟΣ: [2003, 638, 2006, 677]
svg-text:( 0,99 + 0.89 ) / 2 χ 3.70 +: ( 0,99 + 0.89 ) / 2 χ 3.70 + (1,62+1,58 …: [176, 466, 280, 470]
svg-text:3.2.α. ΕΣΩΤΕΡΙΚΟΙ ΕΞΩΣΤΕΣ (: 3.2.α. ΕΣΩΤΕΡΙΚΟΙ ΕΞΩΣΤΕΣ ( ΝΟΚ 4067/12 …: [805, 187, 877, 190]
svg-text:ΥΠΟΥΡΓΕΙΟ ΠΕΡΙΒΑΛΛΟΝΤΟΣ ΚΑΙ ΕΝ: ΥΠΟΥΡΓΕΙΟ ΠΕΡΙΒΑΛΛΟΝΤΟΣ ΚΑΙ ΕΝΕΡΓΕΙΑΣ: [945, 682, 949, 752]
svg-text:3.1. ΚΑΛΥΨΗ (Βλέπε εμβαδόν υπ: 3.1. ΚΑΛΥΨΗ (Βλέπε εμβαδόν υπάρχοντος κτ…: [805, 156, 907, 159]
svg-text:ΑΡΧ. 7: ΑΡΧ. 7: [1981, 1076, 1996, 1081]
svg-text:Α ΟΡΟΦΟΣ= 2,85 μ: Α ΟΡΟΦΟΣ= 2,85 μ: [809, 260, 832, 263]
svg-text:1:100: 1:100: [977, 476, 989, 482]
